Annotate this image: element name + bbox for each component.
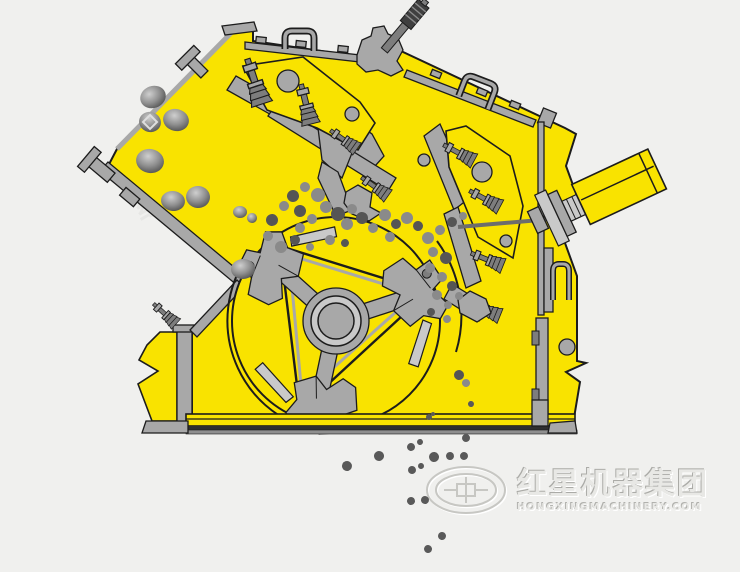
particle (406, 496, 416, 506)
particle (420, 495, 430, 505)
particle (373, 450, 385, 462)
particle (423, 544, 432, 553)
left-support-wall (138, 332, 177, 421)
base-beam (186, 414, 575, 426)
crusher-diagram-page: 红星机器集团 HONGXINGMACHINERY.COM (0, 0, 740, 572)
particle (406, 442, 416, 452)
pivot-pin (500, 235, 512, 247)
impact-crusher-illustration: 红星机器集团 红星机器集团 (0, 0, 740, 572)
channel-clip (532, 331, 539, 345)
left-post (177, 329, 192, 423)
pivot-pin (345, 107, 359, 121)
adjusting-screw (379, 0, 432, 55)
particle (428, 451, 439, 462)
frame-pin-hole (418, 154, 430, 166)
particle (408, 466, 417, 475)
particle (416, 438, 423, 445)
support-foot-left (142, 421, 188, 433)
particle (418, 463, 425, 470)
particle (437, 531, 447, 541)
particle (462, 434, 470, 442)
base-shadow (186, 430, 577, 434)
rotor-hub (303, 288, 369, 354)
base-bracket (532, 400, 548, 426)
support-foot-right (548, 421, 577, 433)
cylinder-body (572, 149, 667, 224)
particle (446, 452, 455, 461)
particle (460, 452, 468, 460)
wall-hole (559, 339, 575, 355)
pivot-pin (277, 70, 299, 92)
base-stripe (186, 426, 575, 430)
rock (275, 241, 287, 253)
pivot-pin (472, 162, 492, 182)
particle (341, 460, 354, 473)
